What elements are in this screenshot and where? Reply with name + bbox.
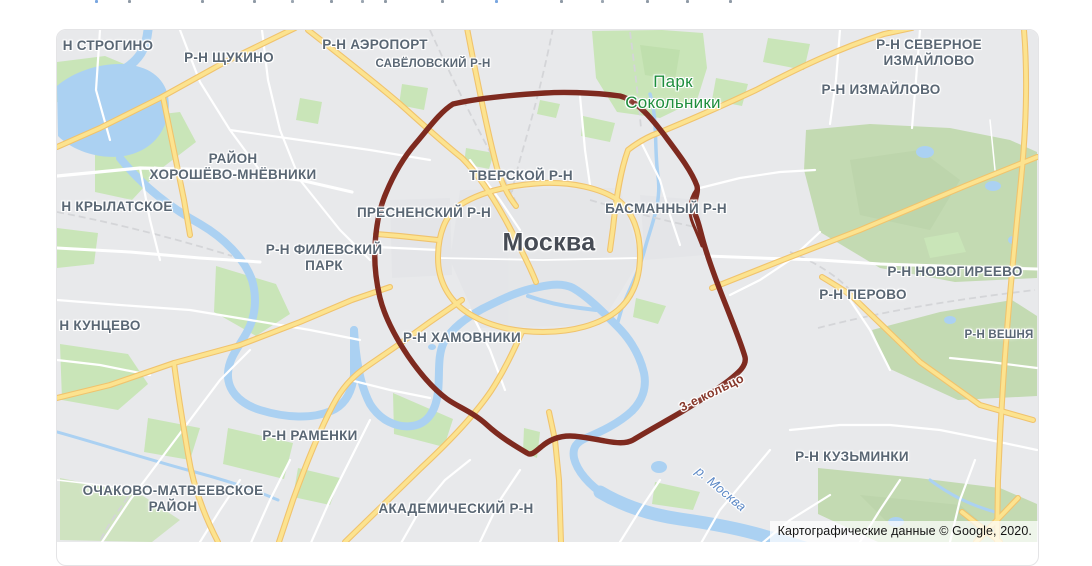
clipped-text-fragment — [646, 0, 649, 3]
clipped-text-fragment — [95, 0, 98, 3]
map-label-ochakovo-matveevskoe: ОЧАКОВО-МАТВЕЕВСКОЕРАЙОН — [83, 483, 264, 515]
clipped-text-fragment — [441, 0, 444, 3]
clipped-text-fragment — [330, 0, 333, 3]
map-label-moskva: Москва — [503, 228, 596, 258]
clipped-text-fragment — [686, 0, 689, 3]
clipped-text-fragment — [495, 0, 498, 3]
map-label-severnoe-izmaylovo: Р-Н СЕВЕРНОЕИЗМАЙЛОВО — [876, 37, 982, 69]
map-label-krylatskoe: Н КРЫЛАТСКОЕ — [61, 199, 172, 215]
map-label-novogireevo: Р-Н НОВОГИРЕЕВО — [887, 264, 1022, 280]
map-label-park-sokolniki: ПаркСокольники — [625, 71, 721, 114]
clipped-text-fragment — [729, 0, 732, 3]
map-label-veshnyaki: Р-Н ВЕШНЯ — [965, 329, 1034, 343]
map-canvas[interactable]: Н СТРОГИНОР-Н ЩУКИНОР-Н АЭРОПОРТСАВЁЛОВС… — [57, 30, 1038, 542]
map-tiles — [57, 30, 1038, 542]
map-label-basmanny: БАСМАННЫЙ Р-Н — [605, 201, 727, 217]
clipped-text-fragment — [291, 0, 294, 3]
map-label-akademichesky: АКАДЕМИЧЕСКИЙ Р-Н — [379, 501, 534, 517]
map-label-khamovniki: Р-Н ХАМОВНИКИ — [403, 330, 521, 346]
clipped-text-fragment — [128, 0, 131, 3]
map-label-shchukino: Р-Н ЩУКИНО — [184, 50, 274, 66]
clipped-text-fragment — [601, 0, 604, 3]
map-label-izmaylovo: Р-Н ИЗМАЙЛОВО — [822, 82, 941, 98]
clipped-text-fragment — [253, 0, 256, 3]
clipped-text-fragment — [361, 0, 364, 3]
map-label-kuzminki: Р-Н КУЗЬМИНКИ — [795, 449, 909, 465]
map-label-kuntsevo: Н КУНЦЕВО — [59, 318, 140, 334]
clipped-text-fragment — [560, 0, 563, 3]
map-label-presnensky: ПРЕСНЕНСКИЙ Р-Н — [357, 205, 491, 221]
map-label-filyovsky-park: Р-Н ФИЛЕВСКИЙПАРК — [266, 242, 383, 274]
map-label-ramenki: Р-Н РАМЕНКИ — [262, 428, 357, 444]
map-label-tverskoy: ТВЕРСКОЙ Р-Н — [469, 168, 573, 184]
map-attribution: Картографические данные © Google, 2020. — [770, 521, 1038, 542]
clipped-text-fragment — [201, 0, 204, 3]
map-label-perovo: Р-Н ПЕРОВО — [819, 287, 906, 303]
map-label-strogino: Н СТРОГИНО — [63, 38, 154, 54]
page: Н СТРОГИНОР-Н ЩУКИНОР-Н АЭРОПОРТСАВЁЛОВС… — [0, 0, 1092, 566]
map-label-khoroshyovo-mnyovniki: РАЙОНХОРОШЁВО-МНЁВНИКИ — [150, 151, 317, 183]
clipped-text-fragment — [384, 0, 387, 3]
map-card: Н СТРОГИНОР-Н ЩУКИНОР-Н АЭРОПОРТСАВЁЛОВС… — [56, 29, 1039, 566]
map-label-aeroport: Р-Н АЭРОПОРТ — [322, 37, 428, 53]
map-label-savyolovsky: САВЁЛОВСКИЙ Р-Н — [375, 58, 490, 72]
